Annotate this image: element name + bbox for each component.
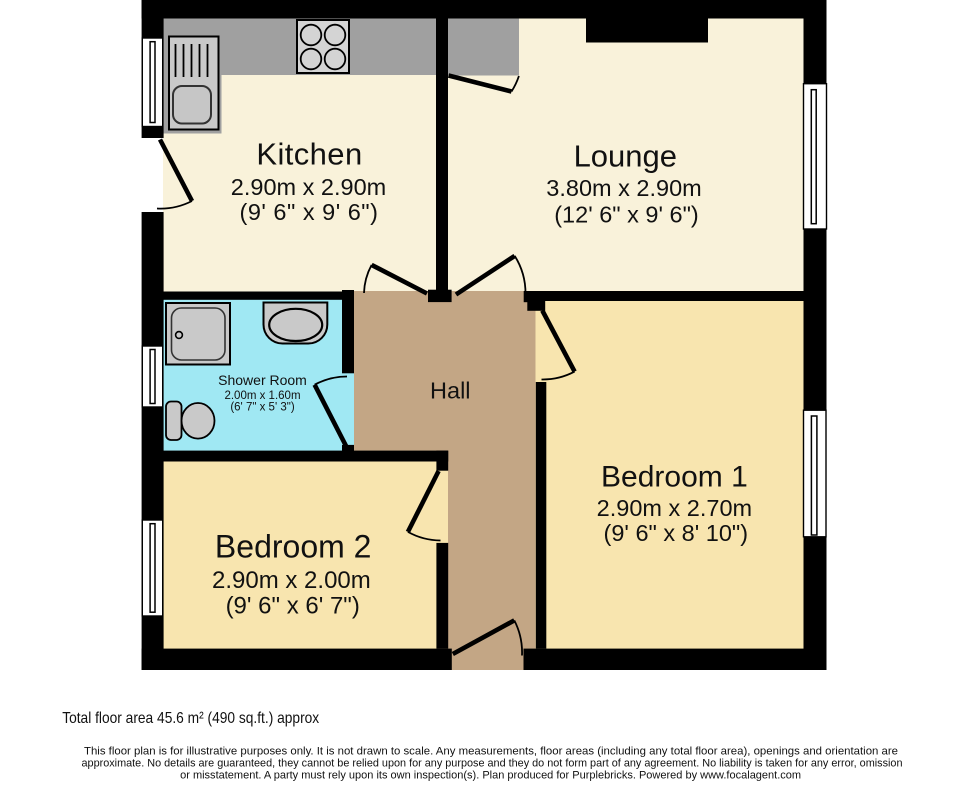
svg-text:(12' 6" x 9' 6"): (12' 6" x 9' 6") xyxy=(554,201,699,227)
svg-text:Kitchen: Kitchen xyxy=(256,137,362,172)
svg-text:3.80m x 2.90m: 3.80m x 2.90m xyxy=(546,175,701,201)
svg-text:Shower Room: Shower Room xyxy=(218,372,307,388)
svg-text:(9' 6" x 9' 6"): (9' 6" x 9' 6") xyxy=(240,199,379,225)
svg-text:Bedroom 1: Bedroom 1 xyxy=(601,461,748,494)
svg-text:Total floor area 45.6 m² (490: Total floor area 45.6 m² (490 sq.ft.) ap… xyxy=(62,710,319,727)
svg-text:2.90m x 2.70m: 2.90m x 2.70m xyxy=(597,495,752,521)
svg-text:2.90m x 2.90m: 2.90m x 2.90m xyxy=(231,174,386,200)
svg-text:Hall: Hall xyxy=(430,378,470,404)
svg-text:Bedroom 2: Bedroom 2 xyxy=(215,528,372,564)
svg-text:(9' 6" x 6' 7"): (9' 6" x 6' 7") xyxy=(226,593,360,620)
svg-text:(9' 6" x 8' 10"): (9' 6" x 8' 10") xyxy=(604,520,749,546)
svg-text:2.90m x 2.00m: 2.90m x 2.00m xyxy=(212,567,371,594)
svg-text:Lounge: Lounge xyxy=(574,138,677,173)
svg-text:approximate. No details are gu: approximate. No details are guaranteed, … xyxy=(82,758,903,770)
svg-text:This floor plan is for illustr: This floor plan is for illustrative purp… xyxy=(84,746,898,758)
svg-text:or misstatement. A party must: or misstatement. A party must rely upon … xyxy=(180,770,801,782)
svg-text:(6' 7" x 5' 3"): (6' 7" x 5' 3") xyxy=(230,402,294,414)
svg-text:2.00m x 1.60m: 2.00m x 1.60m xyxy=(224,390,300,402)
